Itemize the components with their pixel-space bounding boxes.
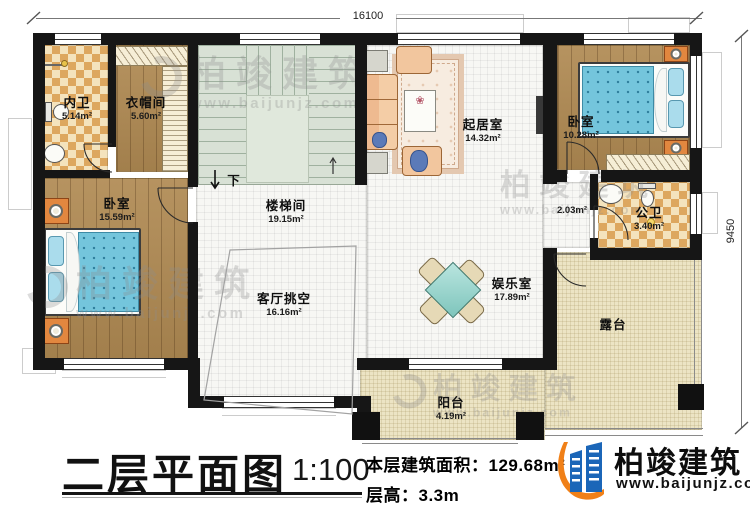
side-table <box>364 50 388 72</box>
window <box>584 33 674 45</box>
person-figure <box>410 150 428 172</box>
stair-landing <box>246 95 309 183</box>
window <box>240 33 320 45</box>
exterior-sill <box>396 14 524 33</box>
room-label-keting-tiaokong: 客厅挑空16.16m² <box>239 292 329 318</box>
room-label-woshi-right: 卧室10.28m² <box>536 115 626 141</box>
wall <box>355 45 367 185</box>
window <box>55 33 101 45</box>
exterior-sill-line <box>222 408 336 416</box>
floor-area-text: 本层建筑面积：129.68m² <box>366 451 565 476</box>
terrace-railing <box>694 258 702 386</box>
wall <box>502 358 555 370</box>
pillow <box>48 272 64 302</box>
window <box>690 56 702 148</box>
hook-knob-icon <box>61 60 68 67</box>
title-underline <box>62 492 362 495</box>
window <box>64 358 164 370</box>
toilet-icon <box>641 190 654 207</box>
dimension-right: 9450 <box>725 210 739 252</box>
toilet-tank <box>638 183 656 189</box>
wall <box>543 248 557 370</box>
bed-fold <box>654 68 667 132</box>
wall <box>188 222 198 370</box>
window <box>409 358 502 370</box>
wall <box>601 170 702 182</box>
room-label-yimaojian: 衣帽间5.60m² <box>101 96 191 122</box>
brand-url: www.baijunjz.com <box>616 475 750 492</box>
nightstand <box>42 318 69 344</box>
wall <box>33 33 45 370</box>
dimension-top: 16100 <box>340 10 396 24</box>
room-label-qijushi: 起居室14.32m² <box>438 118 528 144</box>
wall <box>43 170 110 178</box>
exterior-sill <box>702 192 718 234</box>
person-figure <box>372 132 387 148</box>
window <box>398 33 520 45</box>
column <box>352 412 380 440</box>
room-label-yangtai: 阳台4.19m² <box>406 396 496 422</box>
flower-icon: ❀ <box>415 95 424 107</box>
brand-logo-icon <box>540 432 616 504</box>
exterior-sill <box>702 52 722 148</box>
plan-scale: 1:100 <box>292 452 370 488</box>
title-underline-shadow <box>62 497 362 498</box>
side-table <box>364 152 388 174</box>
corridor-area-label: 2.03m² <box>537 205 607 216</box>
stair-flight-top <box>246 45 309 97</box>
wall <box>590 248 702 260</box>
window <box>224 396 334 408</box>
nightstand <box>42 198 69 224</box>
lamp-icon <box>49 204 63 218</box>
closet-top <box>114 46 188 66</box>
exterior-sill-line <box>62 370 166 378</box>
lamp-icon <box>671 143 682 154</box>
coffee-table: ❀ <box>404 90 436 132</box>
dimension-line-right <box>741 36 742 428</box>
balcony-railing <box>362 438 518 444</box>
lamp-icon <box>49 324 63 338</box>
exterior-sill <box>628 17 690 33</box>
room-label-woshi-left: 卧室15.59m² <box>72 197 162 223</box>
room-label-yuleshi: 娱乐室17.89m² <box>467 277 557 303</box>
exterior-sill <box>8 118 32 210</box>
floor-height-text: 层高：3.3m <box>366 481 459 506</box>
room-label-lutai: 露台 <box>568 318 658 333</box>
stair-flight-left <box>198 45 246 185</box>
nightstand <box>664 46 688 62</box>
sink-icon <box>599 184 623 204</box>
pillow <box>668 100 684 128</box>
wall <box>543 170 567 182</box>
lamp-icon <box>671 49 682 60</box>
wall <box>357 358 409 370</box>
floor-plan-page: ❀ <box>0 0 750 507</box>
armchair <box>396 46 432 74</box>
stair-direction-label: 下 <box>221 174 247 189</box>
pillow <box>668 68 684 96</box>
pillow <box>48 236 64 266</box>
room-label-loutijian: 楼梯间19.15m² <box>241 199 331 225</box>
sink-icon <box>44 144 65 163</box>
bed-blanket <box>78 232 139 312</box>
room-label-gongwei: 公卫3.40m² <box>604 206 694 232</box>
column <box>678 384 704 410</box>
stair-flight-right <box>309 45 357 185</box>
